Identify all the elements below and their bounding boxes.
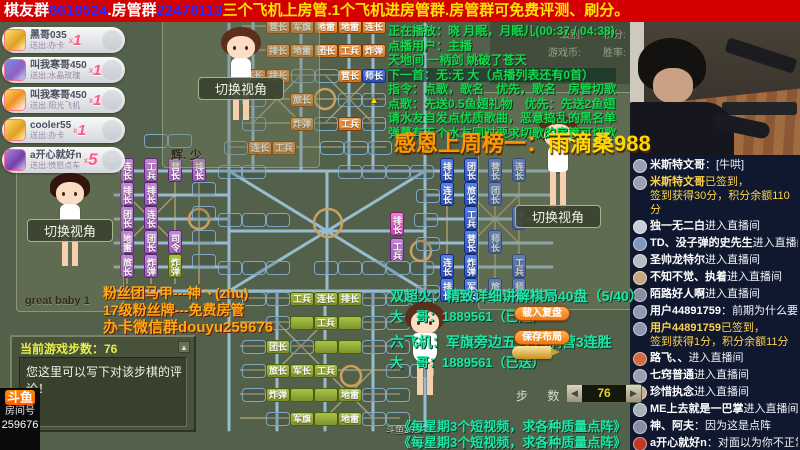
- gift-description: 送出:愤怒点车: [30, 161, 82, 170]
- current-step-count: 当前游戏步数：76: [20, 340, 117, 357]
- command-line: 指令：点歌，歌名 优先，歌名 房管切歌: [388, 82, 616, 97]
- board-empty-slot[interactable]: [218, 261, 242, 275]
- chat-avatar: [633, 369, 647, 383]
- board-piece[interactable]: 工兵: [464, 206, 478, 230]
- chat-avatar: [633, 322, 647, 336]
- board-empty-slot[interactable]: [362, 340, 386, 354]
- board-piece[interactable]: 司令: [168, 230, 182, 254]
- board-empty-slot[interactable]: [338, 165, 362, 179]
- gift-count: 1: [78, 122, 86, 139]
- board-empty-slot[interactable]: [362, 292, 386, 306]
- requester-line: 点播用户：主播: [388, 39, 616, 54]
- board-piece[interactable]: 营长: [338, 69, 362, 83]
- board-piece[interactable]: 旅长: [266, 364, 290, 378]
- board-empty-slot[interactable]: [386, 261, 410, 275]
- chat-text: 珍惜执念进入直播间: [650, 385, 749, 399]
- chat-text: TD、没子弹的史先生进入直播间: [650, 236, 798, 250]
- board-piece[interactable]: 排长: [440, 158, 454, 182]
- chat-message: 用户44891759：前期为什么要动最后两行的: [633, 304, 798, 319]
- board-piece[interactable]: 工兵: [290, 292, 314, 306]
- chat-signin-message: 米斯特文哥已签到，签到获得30分，积分余额110分: [633, 175, 798, 217]
- chat-text: 圣帅龙特尔进入直播间: [650, 253, 760, 267]
- top-fan-name: 雨滴桑988: [548, 131, 651, 156]
- board-empty-slot[interactable]: [410, 261, 434, 275]
- chat-text: 不知不觉、执着进入直播间: [650, 270, 782, 284]
- chat-avatar: [633, 176, 647, 190]
- board-piece[interactable]: [314, 388, 338, 402]
- board-cursor-arrow[interactable]: ▲: [362, 93, 386, 107]
- chat-avatar: [633, 254, 647, 268]
- board-empty-slot[interactable]: [314, 261, 338, 275]
- board-piece[interactable]: 军长: [290, 364, 314, 378]
- board-piece[interactable]: 团长: [266, 340, 290, 354]
- board-empty-slot[interactable]: [368, 141, 392, 155]
- board-piece[interactable]: 军旗: [290, 412, 314, 426]
- chat-text: 七窍普通进入直播间: [650, 368, 749, 382]
- board-empty-slot[interactable]: [414, 213, 438, 227]
- gift-description: 送出:办卡: [30, 41, 67, 50]
- chat-enter-message: TD、没子弹的史先生进入直播间: [633, 236, 798, 251]
- video-promo-line-2: 《每星期3个短视频，求各种质量点阵》: [398, 432, 626, 450]
- step-stepper: ◀ 76 ▶: [566, 384, 642, 403]
- room-id-box: 斗鱼 房间号 259676: [0, 388, 40, 450]
- chat-text: 用户44891759：前期为什么要动最后两行的: [650, 304, 798, 318]
- board-piece[interactable]: 工兵: [390, 238, 404, 262]
- promo-line-1: 双超火：精致详细讲解棋局40盘（5/40）: [390, 286, 643, 306]
- gift-banner: 黑哥035送出:办卡x1: [2, 27, 125, 53]
- gifter-name: 叫我寒哥450: [30, 60, 87, 71]
- board-piece[interactable]: 炸弹: [144, 254, 158, 278]
- gift-icon: [4, 59, 26, 81]
- board-piece[interactable]: 营长: [464, 230, 478, 254]
- board-piece[interactable]: 排长: [338, 292, 362, 306]
- chat-avatar: [633, 305, 647, 319]
- gift-banner: 叫我寒哥450送出:水晶玫瑰x1: [2, 57, 125, 83]
- scroll-up-button[interactable]: ▲: [178, 341, 190, 353]
- board-empty-slot[interactable]: [416, 189, 440, 203]
- board-empty-slot[interactable]: [386, 165, 410, 179]
- board-piece[interactable]: [338, 340, 362, 354]
- board-piece[interactable]: 炸弹: [464, 254, 478, 278]
- board-empty-slot[interactable]: [362, 316, 386, 330]
- board-piece[interactable]: [290, 316, 314, 330]
- chat-message: a开心就好n：对面以为你不正常，全走五六线: [633, 436, 798, 450]
- chat-panel[interactable]: 米斯特文哥：[牛哄]米斯特文哥已签到，签到获得30分，积分余额110分独一无二白…: [630, 155, 800, 450]
- board-piece[interactable]: 工兵: [314, 316, 338, 330]
- streamer-face: [653, 68, 693, 103]
- manager-group-number: 22478113: [157, 2, 223, 19]
- banner-text: 棋友群: [4, 2, 49, 19]
- gift-banner: cooler55送出:办卡x1: [2, 117, 125, 143]
- chat-avatar: [633, 420, 647, 434]
- chat-enter-message: 独一无二白进入直播间: [633, 219, 798, 234]
- board-piece[interactable]: 连长: [144, 206, 158, 230]
- step-number-label: 步 数: [516, 387, 567, 404]
- chat-text: 神、阿夫：因为这是点阵: [650, 419, 771, 433]
- gifter-name: 黑哥035: [30, 30, 67, 41]
- gift-count: 1: [93, 92, 101, 109]
- board-piece[interactable]: 工兵: [144, 158, 158, 182]
- board-empty-slot[interactable]: [242, 261, 266, 275]
- board-empty-slot[interactable]: [242, 213, 266, 227]
- chat-avatar: [633, 352, 647, 366]
- banner-tail-text: 三个飞机上房管.1个飞机进房管群.房管群可免费评测、刷分。: [223, 2, 630, 19]
- board-empty-slot[interactable]: [266, 213, 290, 227]
- board-empty-slot[interactable]: [242, 364, 266, 378]
- chat-enter-message: ME上去就是一巴掌进入直播间: [633, 402, 798, 417]
- load-replay-button[interactable]: 载入复盘: [514, 306, 570, 321]
- save-layout-button[interactable]: 保存布局: [514, 330, 570, 345]
- chat-text: 陌路好人啊进入直播间: [650, 287, 760, 301]
- step-increase-button[interactable]: ▶: [626, 385, 641, 402]
- board-empty-slot[interactable]: [362, 165, 386, 179]
- board-empty-slot[interactable]: [192, 182, 216, 196]
- streamer-webcam: [630, 22, 800, 155]
- board-empty-slot[interactable]: [320, 141, 344, 155]
- board-piece[interactable]: 师长: [362, 69, 386, 83]
- next-song-line: 下一首：无:无 大（点播列表还有0首）: [388, 68, 616, 83]
- board-empty-slot[interactable]: [362, 117, 386, 131]
- board-empty-slot[interactable]: [266, 412, 290, 426]
- gifter-name: cooler55: [30, 120, 71, 131]
- chat-enter-message: 不知不觉、执着进入直播间: [633, 270, 798, 285]
- chat-avatar: [633, 437, 647, 450]
- chat-avatar: [633, 159, 647, 173]
- chat-enter-message: 圣帅龙特尔进入直播间: [633, 253, 798, 268]
- board-empty-slot[interactable]: [344, 141, 368, 155]
- board-piece[interactable]: 炸弹: [168, 254, 182, 278]
- board-piece[interactable]: [290, 388, 314, 402]
- switch-view-button[interactable]: 切换视角: [27, 219, 113, 242]
- now-playing-line: 正在播放：晓 月眠，月眠儿(00:37 / 04:38): [388, 24, 616, 39]
- board-piece[interactable]: 排长: [144, 182, 158, 206]
- board-empty-slot[interactable]: [242, 340, 266, 354]
- chat-message: 神、阿夫：因为这是点阵: [633, 419, 798, 434]
- treadmill-base: [722, 102, 797, 115]
- treadmill-icon: [724, 37, 797, 74]
- gifter-name: 叫我寒哥450: [30, 90, 87, 101]
- chat-text: 独一无二白进入直播间: [650, 219, 760, 233]
- board-piece[interactable]: 团长: [144, 230, 158, 254]
- board-piece[interactable]: [314, 340, 338, 354]
- board-empty-slot[interactable]: [242, 388, 266, 402]
- gift-icon: [4, 149, 26, 171]
- fan-line-3: 办卡微信群douyu259676: [103, 319, 273, 336]
- lyric-line: 天地间 一柄剑 姚破了苍天: [388, 53, 616, 68]
- stream-screen: 营长军旗地雷地雷连长排长地雷团长工兵炸弹连长排长营长师长旅长炸弹工兵连长工兵连长…: [0, 0, 800, 450]
- board-empty-slot[interactable]: [362, 261, 386, 275]
- room-announcement-banner: 棋友群8618524.房管群22478113三个飞机上房管.1个飞机进房管群.房…: [0, 0, 800, 22]
- gift-description: 送出:阳光飞机: [30, 101, 87, 110]
- player-name: 辉. 少: [171, 146, 202, 163]
- switch-view-button[interactable]: 切换视角: [515, 205, 601, 228]
- board-piece[interactable]: 地雷: [338, 412, 362, 426]
- room-number: 259676: [0, 419, 40, 431]
- chess-group-number: 8618524: [49, 2, 107, 19]
- board-piece[interactable]: 连长: [440, 182, 454, 206]
- chat-avatar: [633, 271, 647, 285]
- switch-view-button[interactable]: 切换视角: [198, 77, 284, 100]
- board-piece[interactable]: 排长: [390, 212, 404, 236]
- chat-enter-message: 珍惜执念进入直播间: [633, 385, 798, 400]
- gift-count: 1: [93, 62, 101, 79]
- board-empty-slot[interactable]: [362, 388, 386, 402]
- board-piece[interactable]: 地雷: [338, 388, 362, 402]
- weekly-top-fan-banner: 感恩上周榜一：雨滴桑988: [394, 126, 651, 158]
- board-piece[interactable]: 炸弹: [362, 44, 386, 58]
- board-piece[interactable]: 连长: [362, 20, 386, 34]
- board-piece[interactable]: 工兵: [314, 364, 338, 378]
- rule-line-1: 请水友自发点优质歌曲，恶意捣乱的黑名单: [388, 111, 616, 126]
- chat-avatar: [633, 237, 647, 251]
- gift-banner: a开心就好n送出:愤怒点车x5: [2, 147, 125, 173]
- gift-icon: [4, 89, 26, 111]
- gift-icon: [4, 29, 26, 51]
- board-empty-slot[interactable]: [410, 165, 434, 179]
- chat-text: a开心就好n：对面以为你不正常，全走五六线: [650, 436, 798, 450]
- promo-line-3: 六飞机：军旗旁边五 步内满营3连胜: [390, 332, 612, 352]
- chat-message: 米斯特文哥：[牛哄]: [633, 158, 798, 173]
- board-empty-slot[interactable]: [338, 261, 362, 275]
- chat-text: 路飞、、进入直播间: [650, 351, 744, 365]
- board-empty-slot[interactable]: [338, 93, 362, 107]
- chat-text: ME上去就是一巴掌进入直播间: [650, 402, 798, 416]
- song-info-block: 正在播放：晓 月眠，月眠儿(00:37 / 04:38) 点播用户：主播 天地间…: [388, 24, 616, 140]
- chat-text: 米斯特文哥：[牛哄]: [650, 158, 744, 172]
- board-piece[interactable]: 工兵: [338, 117, 362, 131]
- thanks-label: 感恩上周榜一：: [394, 131, 548, 156]
- board-piece[interactable]: [314, 412, 338, 426]
- gift-description: 送出:水晶玫瑰: [30, 71, 87, 80]
- board-empty-slot[interactable]: [192, 254, 216, 268]
- board-empty-slot[interactable]: [290, 340, 314, 354]
- board-piece[interactable]: 炸弹: [266, 388, 290, 402]
- player-card-top: 切换视角 辉. 少: [162, 16, 320, 168]
- chat-enter-message: 七窍普通进入直播间: [633, 368, 798, 383]
- player-name: great baby 1: [25, 295, 90, 307]
- board-empty-slot[interactable]: [192, 230, 216, 244]
- board-piece[interactable]: 工兵: [338, 44, 362, 58]
- gift-description: 送出:办卡: [30, 131, 71, 140]
- chat-text: 米斯特文哥已签到，签到获得30分，积分余额110分: [650, 175, 798, 217]
- gift-count: 1: [73, 32, 81, 49]
- chat-avatar: [633, 403, 647, 417]
- board-piece[interactable]: 旅长: [464, 182, 478, 206]
- price-line: 点歌：先送0.5鱼翅礼物 优先：先送2鱼翅: [388, 97, 616, 112]
- chat-signin-message: 用户44891759已签到，签到获得1分，积分余额11分: [633, 321, 798, 349]
- board-piece[interactable]: 团长: [464, 158, 478, 182]
- room-number-label: 房间号: [0, 405, 40, 419]
- board-empty-slot[interactable]: [218, 213, 242, 227]
- board-piece[interactable]: 地雷: [338, 20, 362, 34]
- board-piece[interactable]: 连长: [440, 254, 454, 278]
- gifter-name: a开心就好n: [30, 150, 82, 161]
- chat-enter-message: 陌路好人啊进入直播间: [633, 287, 798, 302]
- board-piece[interactable]: 连长: [314, 292, 338, 306]
- step-comment-input[interactable]: 您这里可以写下对该步棋的评论！: [19, 357, 187, 427]
- douyu-logo: 斗鱼: [5, 390, 35, 405]
- chat-enter-message: 路飞、、进入直播间: [633, 351, 798, 366]
- board-empty-slot[interactable]: [192, 206, 216, 220]
- fan-club-info: 粉丝团马甲---神丶(zhu) 17级粉丝牌---免费房管 办卡微信群douyu…: [103, 285, 273, 336]
- board-empty-slot[interactable]: [362, 412, 386, 426]
- step-value: 76: [582, 385, 626, 402]
- fan-line-2: 17级粉丝牌---免费房管: [103, 302, 273, 319]
- gift-count: 5: [88, 150, 97, 170]
- bullet-icon: [512, 346, 552, 359]
- fan-line-1: 粉丝团马甲---神丶(zhu): [103, 285, 273, 302]
- board-empty-slot[interactable]: [416, 237, 440, 251]
- chat-text: 用户44891759已签到，签到获得1分，积分余额11分: [650, 321, 789, 349]
- chat-avatar: [633, 220, 647, 234]
- gift-icon: [4, 119, 26, 141]
- step-decrease-button[interactable]: ◀: [567, 385, 582, 402]
- comment-placeholder: 您这里可以写下对该步棋的评论！: [26, 363, 186, 397]
- board-empty-slot[interactable]: [266, 261, 290, 275]
- board-piece[interactable]: [338, 316, 362, 330]
- gift-banner: 叫我寒哥450送出:阳光飞机x1: [2, 87, 125, 113]
